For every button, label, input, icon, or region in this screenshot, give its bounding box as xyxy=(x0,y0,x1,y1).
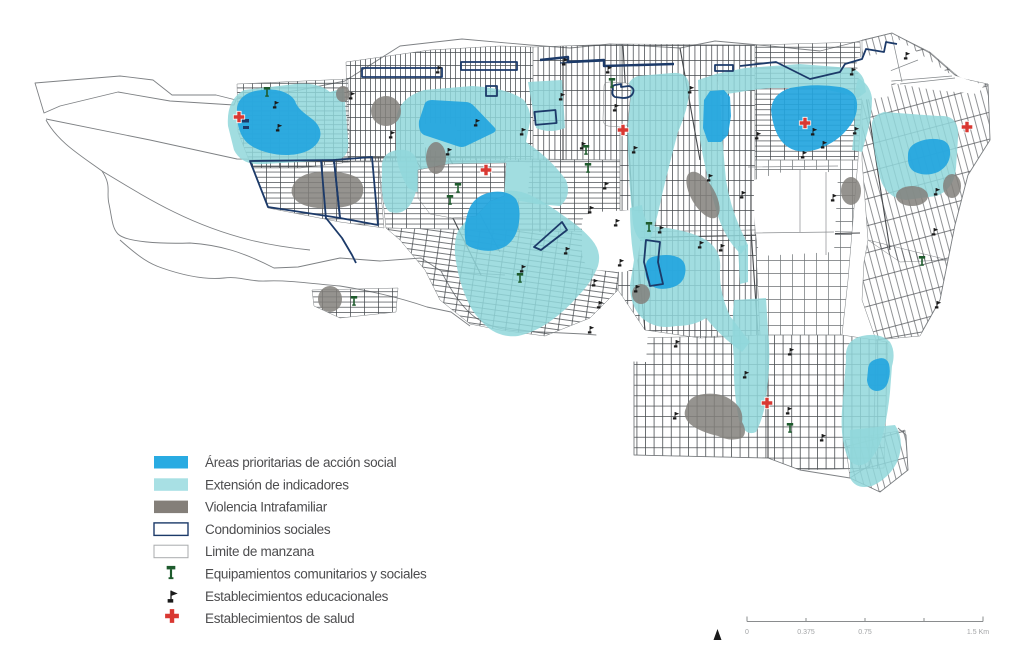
svg-text:Violencia Intrafamiliar: Violencia Intrafamiliar xyxy=(205,500,328,515)
svg-text:0: 0 xyxy=(745,629,749,636)
svg-text:0.375: 0.375 xyxy=(797,629,815,636)
svg-text:Equipamientos comunitarios y s: Equipamientos comunitarios y sociales xyxy=(205,567,427,582)
svg-text:Extensión de indicadores: Extensión de indicadores xyxy=(205,477,349,492)
svg-text:Limite de manzana: Limite de manzana xyxy=(205,544,315,559)
svg-text:Áreas prioritarias de acción s: Áreas prioritarias de acción social xyxy=(205,455,397,470)
svg-text:Establecimientos educacionales: Establecimientos educacionales xyxy=(205,589,389,604)
svg-text:1.5 Km: 1.5 Km xyxy=(967,629,989,636)
svg-text:Condominios sociales: Condominios sociales xyxy=(205,522,331,537)
svg-text:Establecimientos de salud: Establecimientos de salud xyxy=(205,611,354,626)
svg-text:0.75: 0.75 xyxy=(858,629,872,636)
